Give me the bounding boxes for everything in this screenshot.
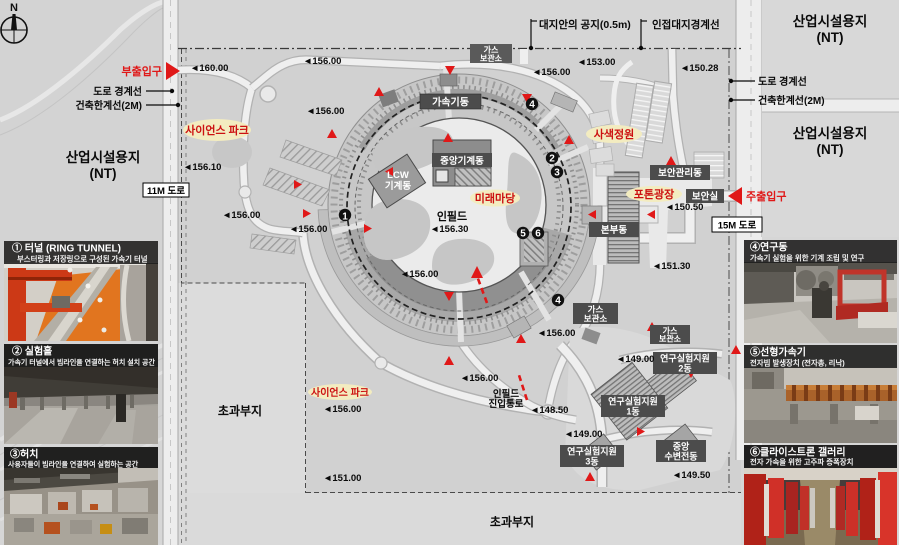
svg-text:◄149.00: ◄149.00 [564,429,602,440]
svg-text:연구실험지원: 연구실험지원 [608,396,658,407]
svg-text:가속기 터널에서 빔라인을 연결하는 허치 설치 공간: 가속기 터널에서 빔라인을 연결하는 허치 설치 공간 [8,358,155,367]
svg-text:◄156.00: ◄156.00 [289,224,327,235]
svg-text:산업시설용지: 산업시설용지 [66,149,141,165]
svg-text:주출입구: 주출입구 [746,189,786,203]
svg-text:◄149.50: ◄149.50 [672,470,710,481]
svg-text:보관소: 보관소 [584,314,608,324]
svg-text:사이언스 파크: 사이언스 파크 [185,123,249,137]
svg-text:건축한계선(2M): 건축한계선(2M) [75,99,142,112]
svg-text:수변전동: 수변전동 [664,451,697,462]
svg-text:보관소: 보관소 [480,53,503,63]
svg-text:진입통로: 진입통로 [489,398,524,410]
svg-text:◄160.00: ◄160.00 [190,63,228,74]
svg-text:인필드: 인필드 [437,209,467,223]
svg-text:LCW: LCW [387,170,409,181]
svg-text:인접대지경계선: 인접대지경계선 [652,18,720,31]
svg-text:◄156.00: ◄156.00 [532,67,570,78]
svg-text:포톤광장: 포톤광장 [634,187,674,201]
svg-text:6: 6 [535,229,541,240]
svg-text:중앙기계동: 중앙기계동 [440,155,484,167]
svg-text:◄156.00: ◄156.00 [222,210,260,221]
svg-text:사색정원: 사색정원 [594,127,634,141]
svg-text:◄151.30: ◄151.30 [652,261,690,272]
svg-text:보관소: 보관소 [659,334,682,344]
svg-text:가속기 실험을 위한 기계 조립 및 연구: 가속기 실험을 위한 기계 조립 및 연구 [750,254,865,263]
svg-text:도로 경계선: 도로 경계선 [93,85,142,98]
svg-text:연구실험지원: 연구실험지원 [567,446,617,457]
svg-text:미래마당: 미래마당 [475,191,515,205]
svg-text:4: 4 [555,296,561,307]
svg-text:산업시설용지: 산업시설용지 [793,125,868,141]
svg-text:보안실: 보안실 [692,191,718,203]
svg-text:전자 가속을 위한 고주파 증폭장치: 전자 가속을 위한 고주파 증폭장치 [750,458,853,467]
svg-text:건축한계선(2M): 건축한계선(2M) [758,94,825,107]
svg-text:(NT): (NT) [817,30,844,45]
svg-text:부출입구: 부출입구 [122,64,162,78]
svg-text:N: N [10,2,18,14]
svg-text:도로 경계선: 도로 경계선 [758,75,807,88]
svg-text:◄149.00: ◄149.00 [616,354,654,365]
svg-text:중앙: 중앙 [673,441,690,452]
svg-text:2: 2 [549,154,555,165]
svg-text:◄156.00: ◄156.00 [306,106,344,117]
svg-text:◄153.00: ◄153.00 [577,57,615,68]
svg-text:부스터링과 저장링으로 구성된 가속기 터널: 부스터링과 저장링으로 구성된 가속기 터널 [17,255,148,264]
svg-text:연구실험지원: 연구실험지원 [660,353,710,364]
svg-text:산업시설용지: 산업시설용지 [793,13,868,29]
svg-text:◄156.00: ◄156.00 [537,328,575,339]
svg-text:초과부지: 초과부지 [490,514,534,529]
svg-text:1: 1 [342,212,348,223]
svg-text:◄151.00: ◄151.00 [323,473,361,484]
svg-text:◄148.50: ◄148.50 [530,405,568,416]
svg-text:사용자들이 빔라인을 연결하여 실험하는 공간: 사용자들이 빔라인을 연결하여 실험하는 공간 [8,460,139,469]
svg-text:5: 5 [520,229,526,240]
svg-text:가속기동: 가속기동 [432,96,469,109]
svg-text:◄156.00: ◄156.00 [323,404,361,415]
svg-text:◄150.50: ◄150.50 [665,202,703,213]
svg-text:4: 4 [529,100,535,111]
svg-text:④연구동: ④연구동 [750,241,788,254]
svg-text:본부동: 본부동 [601,224,627,236]
svg-text:전자빔 발생장치 (전자총, 리낙): 전자빔 발생장치 (전자총, 리낙) [750,359,845,368]
svg-text:3동: 3동 [585,457,598,467]
svg-text:2동: 2동 [678,364,691,374]
svg-text:1동: 1동 [626,407,639,417]
svg-text:3: 3 [554,168,560,179]
svg-text:◄156.00: ◄156.00 [460,373,498,384]
svg-text:보안관리동: 보안관리동 [658,167,702,179]
svg-text:◄156.10: ◄156.10 [183,162,221,173]
svg-text:◄156.00: ◄156.00 [400,269,438,280]
svg-text:대지안의 공지(0.5m): 대지안의 공지(0.5m) [539,18,631,31]
svg-text:15M 도로: 15M 도로 [718,221,757,232]
svg-text:◄156.00: ◄156.00 [303,56,341,67]
svg-text:◄156.30: ◄156.30 [430,224,468,235]
svg-text:사이언스 파크: 사이언스 파크 [311,386,369,399]
svg-text:① 터널 (RING TUNNEL): ① 터널 (RING TUNNEL) [12,242,121,255]
svg-text:가스: 가스 [484,45,499,55]
svg-text:(NT): (NT) [90,166,117,181]
svg-text:◄150.28: ◄150.28 [680,63,718,74]
svg-text:⑤선형가속기: ⑤선형가속기 [750,346,806,359]
svg-text:기계동: 기계동 [385,180,411,192]
svg-text:초과부지: 초과부지 [218,403,262,418]
svg-text:(NT): (NT) [817,142,844,157]
svg-text:③허치: ③허치 [10,448,38,461]
svg-text:11M 도로: 11M 도로 [147,186,185,197]
svg-text:② 실험홀: ② 실험홀 [12,345,52,358]
